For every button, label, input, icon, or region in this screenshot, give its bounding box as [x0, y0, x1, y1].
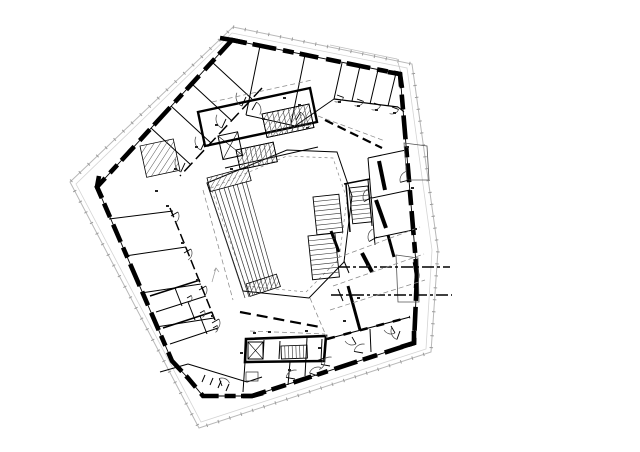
floor-plan-page — [0, 0, 640, 452]
floor-plan-drawing — [0, 0, 640, 452]
facade-outline — [70, 27, 438, 428]
structural-walls — [198, 88, 394, 362]
